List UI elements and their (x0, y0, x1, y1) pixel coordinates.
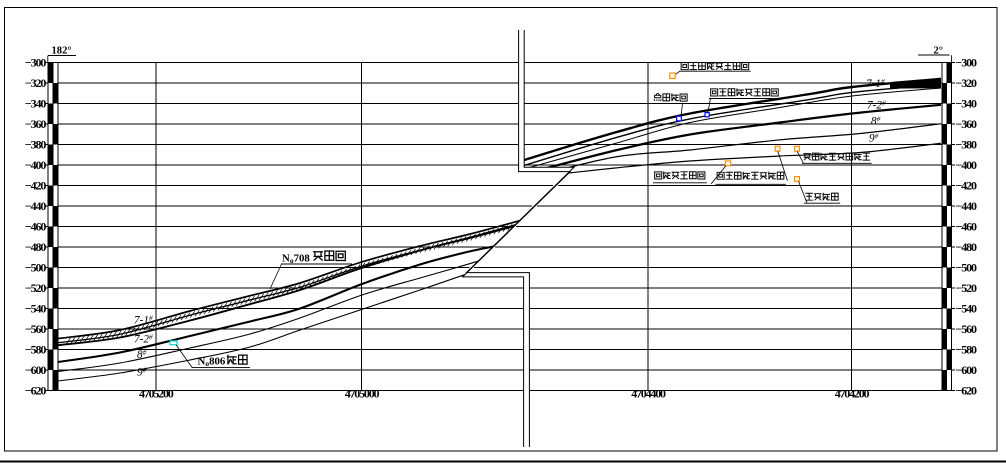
svg-text:−540: −540 (25, 302, 47, 316)
svg-text:−460: −460 (25, 220, 47, 234)
svg-text:−520: −520 (25, 281, 47, 295)
svg-text:−620: −620 (956, 384, 978, 398)
svg-text:−340: −340 (25, 97, 47, 111)
svg-text:−580: −580 (956, 343, 978, 357)
svg-text:−620: −620 (25, 384, 47, 398)
svg-text:−540: −540 (956, 302, 978, 316)
svg-text:−400: −400 (25, 158, 47, 172)
svg-text:4704400: 4704400 (631, 387, 666, 401)
svg-text:−480: −480 (956, 240, 978, 254)
svg-text:−320: −320 (25, 76, 47, 90)
svg-text:−440: −440 (25, 199, 47, 213)
svg-text:−500: −500 (956, 261, 978, 275)
svg-text:−380: −380 (956, 138, 978, 152)
svg-text:−460: −460 (956, 220, 978, 234)
svg-text:4705200: 4705200 (139, 387, 174, 401)
svg-text:4704200: 4704200 (835, 387, 870, 401)
svg-text:−600: −600 (956, 363, 978, 377)
svg-text:No806: No806 (198, 356, 226, 369)
svg-text:−520: −520 (956, 281, 978, 295)
svg-text:4705000: 4705000 (345, 387, 380, 401)
svg-text:−320: −320 (956, 76, 978, 90)
svg-text:−560: −560 (25, 322, 47, 336)
svg-text:−580: −580 (25, 343, 47, 357)
svg-text:182°: 182° (52, 46, 72, 57)
svg-text:−300: −300 (25, 56, 47, 70)
svg-text:−560: −560 (956, 322, 978, 336)
svg-text:−360: −360 (956, 117, 978, 131)
svg-text:−420: −420 (956, 179, 978, 193)
svg-text:−600: −600 (25, 363, 47, 377)
svg-text:−420: −420 (25, 179, 47, 193)
svg-text:−300: −300 (956, 56, 978, 70)
svg-text:No708: No708 (282, 252, 310, 265)
svg-text:−380: −380 (25, 138, 47, 152)
svg-text:−340: −340 (956, 97, 978, 111)
svg-text:−440: −440 (956, 199, 978, 213)
svg-text:−360: −360 (25, 117, 47, 131)
svg-text:−480: −480 (25, 240, 47, 254)
svg-text:−400: −400 (956, 158, 978, 172)
svg-text:−500: −500 (25, 261, 47, 275)
